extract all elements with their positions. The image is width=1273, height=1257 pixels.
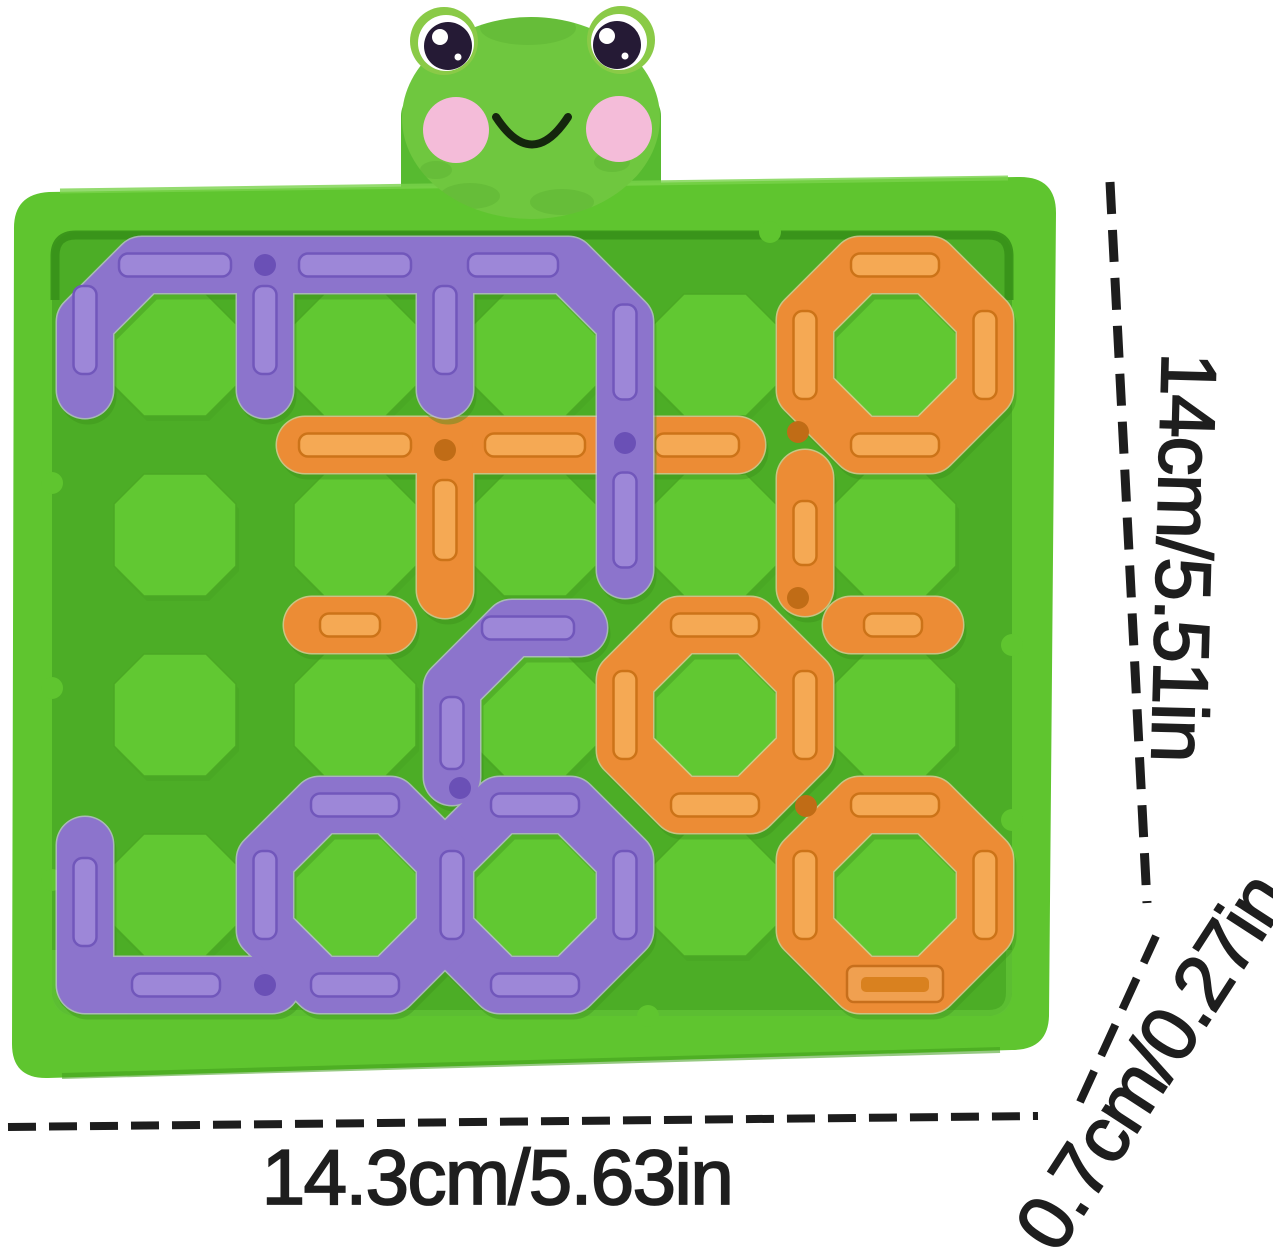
svg-text:14.3cm/5.63in: 14.3cm/5.63in	[262, 1133, 732, 1221]
svg-text:14cm/5.51in: 14cm/5.51in	[1135, 352, 1234, 763]
